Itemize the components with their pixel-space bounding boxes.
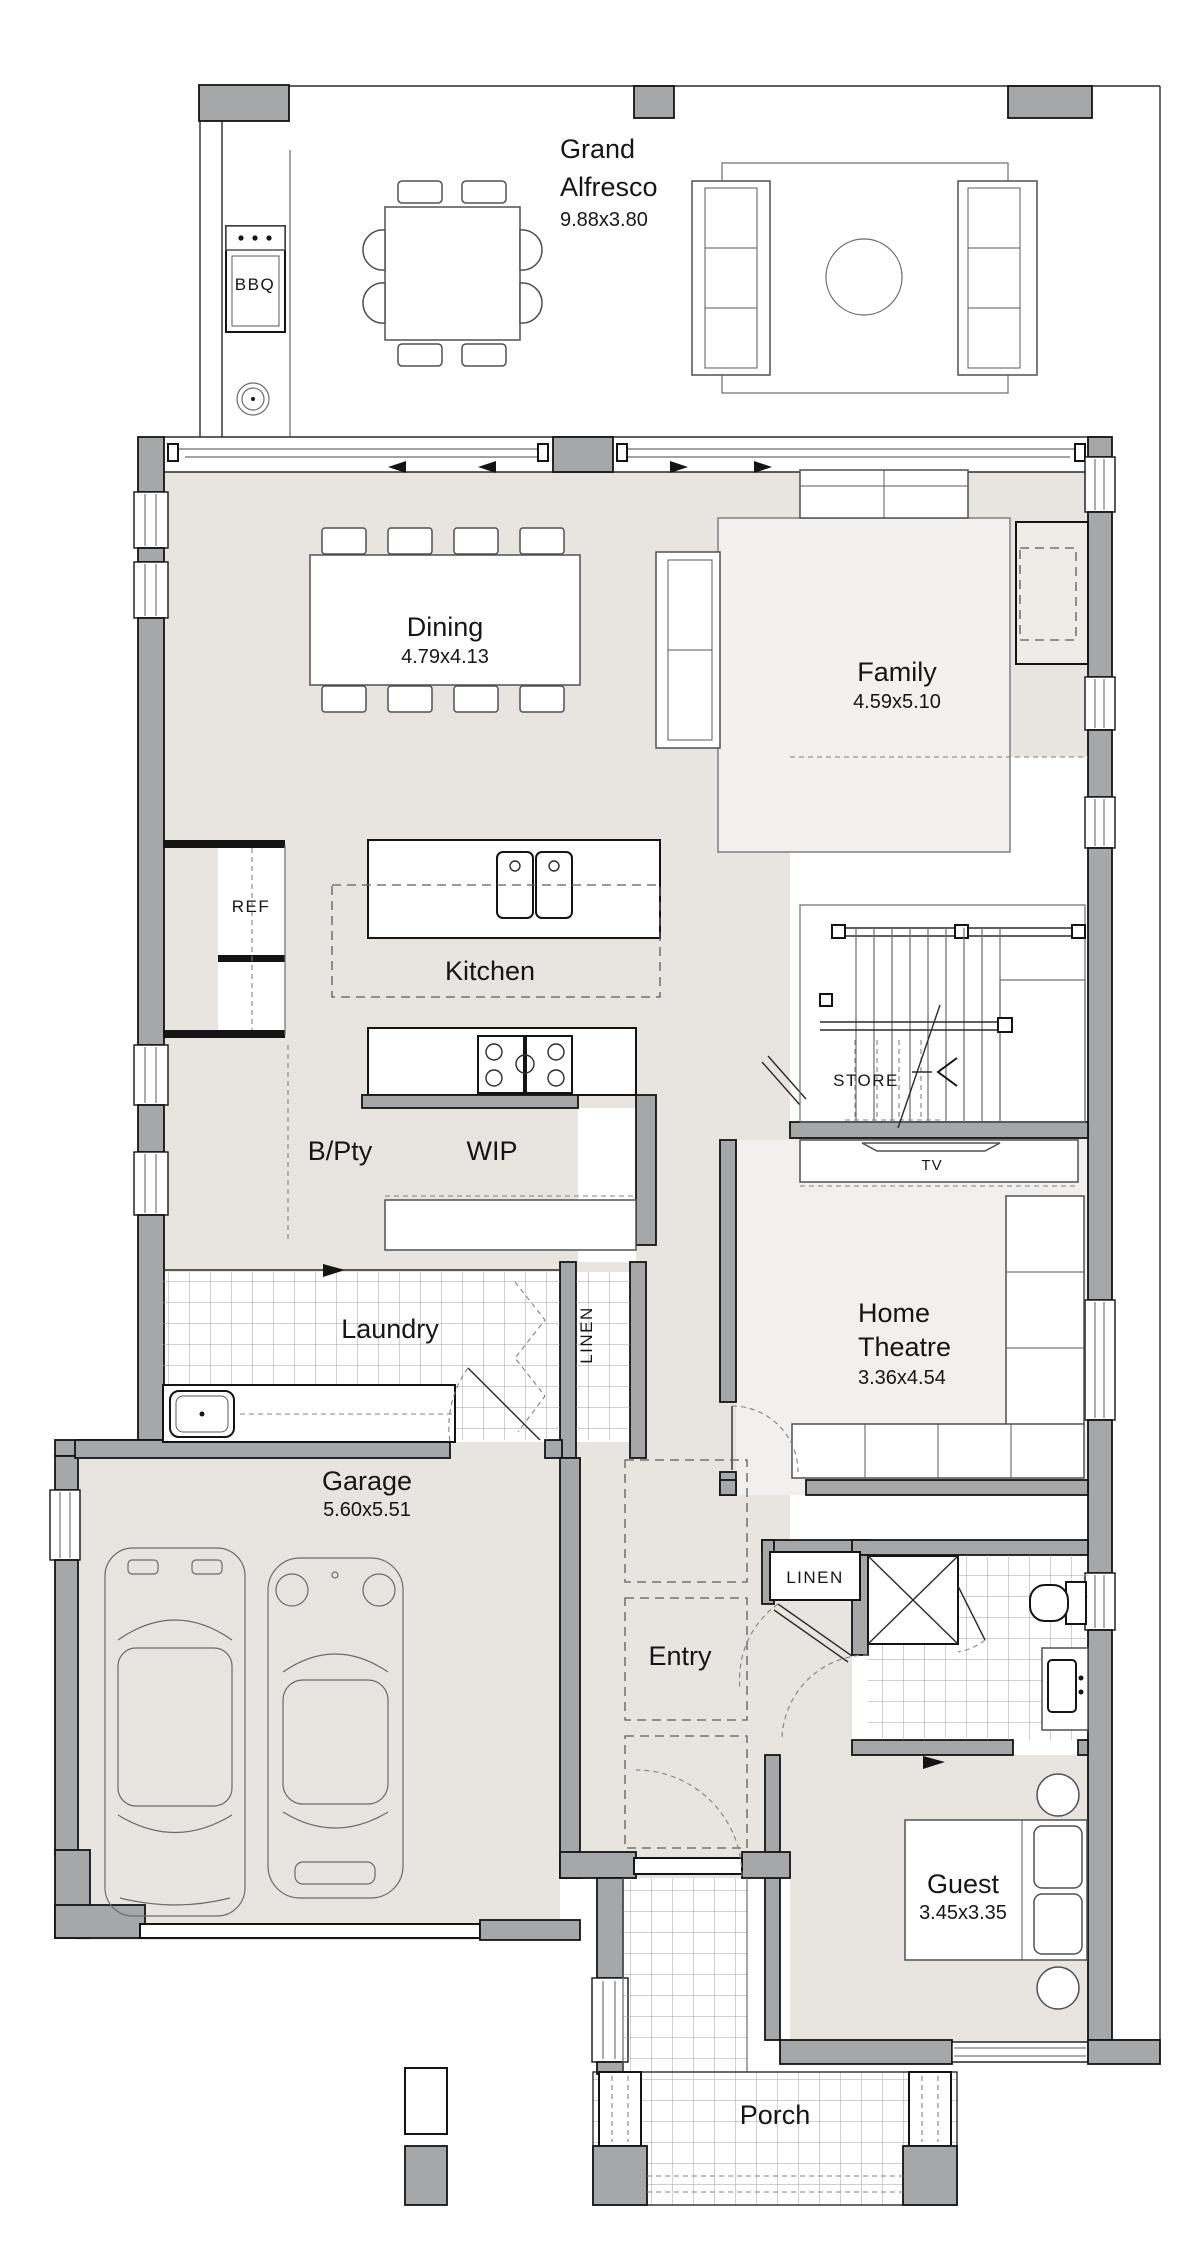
floor-plan: Grand Alfresco 9.88x3.80 BBQ Dining 4.79… xyxy=(0,0,1202,2259)
cooktop xyxy=(478,1036,572,1093)
media-niche xyxy=(1016,522,1088,664)
label-grand-alfresco-2: Alfresco xyxy=(560,172,658,202)
label-linen-laundry: LINEN xyxy=(577,1306,596,1364)
label-home-theatre-1: Home xyxy=(858,1298,930,1328)
label-home-theatre-2: Theatre xyxy=(858,1332,951,1362)
label-family: Family xyxy=(857,657,937,687)
label-laundry: Laundry xyxy=(341,1314,439,1344)
door-slide-arrow xyxy=(754,461,772,473)
vanity xyxy=(1042,1648,1088,1730)
label-bpty: B/Pty xyxy=(308,1136,373,1166)
door-slide-arrow xyxy=(388,461,406,473)
label-dining-dims: 4.79x4.13 xyxy=(401,646,489,668)
pillow xyxy=(1034,1826,1082,1888)
door-slide-arrow xyxy=(670,461,688,473)
label-family-dims: 4.59x5.10 xyxy=(853,691,941,713)
label-wip: WIP xyxy=(467,1136,518,1166)
outdoor-dining-set xyxy=(363,181,542,366)
door-slide-arrow xyxy=(478,461,496,473)
front-door xyxy=(634,1858,742,1874)
side-table xyxy=(1037,1774,1079,1816)
stacker-door-band xyxy=(163,437,1105,473)
garage-door xyxy=(140,1924,480,1938)
pillow xyxy=(1034,1894,1082,1954)
label-dining: Dining xyxy=(407,612,484,642)
pier xyxy=(1008,86,1092,118)
pier xyxy=(199,85,289,121)
porch-pillar xyxy=(903,2146,957,2205)
side-table xyxy=(1037,1967,1079,2009)
porch-pillar xyxy=(593,2146,647,2205)
label-linen-entry: LINEN xyxy=(786,1568,844,1587)
label-guest: Guest xyxy=(927,1869,1000,1899)
label-home-theatre-dims: 3.36x4.54 xyxy=(858,1367,946,1389)
label-guest-dims: 3.45x3.35 xyxy=(919,1902,1007,1924)
label-store: STORE xyxy=(833,1071,899,1090)
wip-bench xyxy=(385,1200,636,1250)
round-table xyxy=(826,239,902,315)
label-grand-alfresco-dims: 9.88x3.80 xyxy=(560,209,648,231)
label-grand-alfresco-1: Grand xyxy=(560,134,635,164)
label-garage-dims: 5.60x5.51 xyxy=(323,1499,411,1521)
label-entry: Entry xyxy=(648,1641,712,1671)
label-ref: REF xyxy=(232,897,271,916)
bbq-bench xyxy=(226,226,285,415)
label-kitchen: Kitchen xyxy=(445,956,535,986)
tv-unit xyxy=(862,1143,1000,1151)
laundry xyxy=(163,1264,630,1442)
pier xyxy=(634,86,674,118)
floor-plan-page: Grand Alfresco 9.88x3.80 BBQ Dining 4.79… xyxy=(0,0,1202,2259)
label-tv: TV xyxy=(921,1157,942,1174)
outdoor-lounge-set xyxy=(692,163,1037,393)
sink xyxy=(536,852,572,918)
label-garage: Garage xyxy=(322,1466,412,1496)
theatre-sofa xyxy=(1006,1196,1084,1426)
label-bbq: BBQ xyxy=(235,275,275,294)
pier xyxy=(553,437,613,472)
toilet xyxy=(1030,1582,1086,1624)
label-porch: Porch xyxy=(740,2100,811,2130)
pier xyxy=(405,2146,447,2205)
